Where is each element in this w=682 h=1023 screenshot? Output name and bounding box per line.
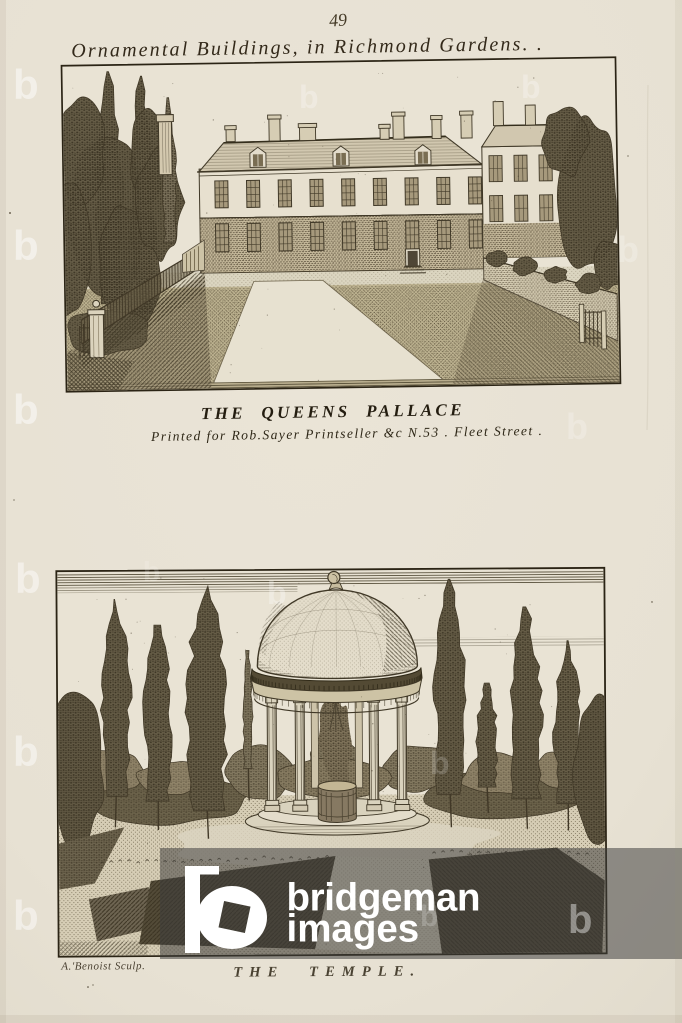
svg-text:b: b: [13, 892, 39, 939]
svg-text:THE QUEENS PALLACE: THE QUEENS PALLACE: [201, 400, 465, 423]
svg-text:b: b: [430, 745, 450, 781]
svg-text:b: b: [568, 898, 592, 942]
svg-text:b: b: [13, 61, 39, 108]
svg-text:THE TEMPLE.: THE TEMPLE.: [233, 963, 421, 980]
svg-text:b: b: [13, 386, 39, 433]
svg-text:images: images: [287, 908, 420, 951]
svg-text:b: b: [617, 229, 639, 270]
svg-text:b: b: [521, 69, 541, 105]
svg-text:A.'Benoist Sculp.: A.'Benoist Sculp.: [60, 960, 145, 973]
svg-text:b: b: [13, 222, 39, 269]
svg-text:b: b: [299, 79, 319, 115]
svg-text:b: b: [143, 556, 160, 587]
svg-text:b: b: [267, 575, 287, 611]
svg-text:b: b: [15, 555, 41, 602]
svg-text:49: 49: [328, 9, 347, 30]
svg-text:b: b: [13, 728, 39, 775]
svg-text:b: b: [566, 406, 588, 447]
